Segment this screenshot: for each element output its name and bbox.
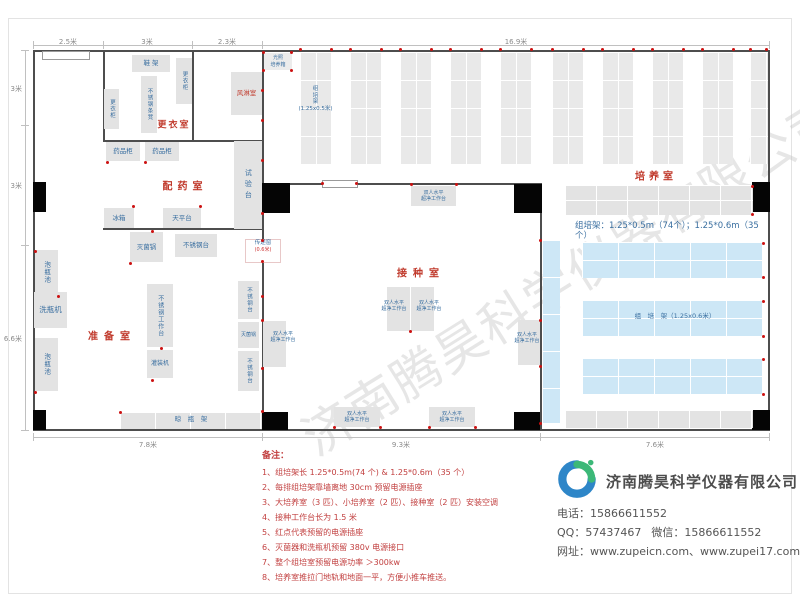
power-outlet-dot (144, 161, 147, 164)
eq-steel-worktable: 不锈钢工作台 (147, 284, 173, 347)
dim-tick (262, 41, 263, 49)
dim-line-left (25, 50, 26, 431)
note-item: 4、接种工作台长为 1.5 米 (262, 510, 557, 525)
power-outlet-dot (430, 48, 433, 51)
power-outlet-dot (601, 48, 604, 51)
culture-rack-column (500, 52, 531, 164)
wall-inoculation-top (262, 183, 542, 185)
power-outlet-dot (732, 48, 735, 51)
dim-tick (21, 125, 29, 126)
wechat-value: 15866611552 (684, 526, 761, 539)
eq-soak-pool: 泡瓶池 (35, 338, 58, 391)
dim-tick (769, 41, 770, 49)
power-outlet-dot (261, 295, 264, 298)
culture-rack-blue-strip (543, 240, 560, 423)
sliding-door (322, 180, 358, 188)
power-outlet-dot (290, 51, 293, 54)
power-outlet-dot (449, 48, 452, 51)
dim-tick (21, 50, 29, 51)
culture-rack-blue-row (582, 242, 763, 278)
power-outlet-dot (355, 182, 358, 185)
dim-top-4: 16.9米 (505, 37, 528, 47)
power-outlet-dot (551, 48, 554, 51)
phone-label: 电话： (557, 507, 590, 520)
room-label-dispensing: 配药室 (163, 178, 208, 193)
eq-steel-table: 不锈钢台 (175, 234, 217, 257)
eq-soak-pool: 泡瓶池 (35, 250, 58, 294)
power-outlet-dot (409, 330, 412, 333)
room-label-culture: 培养室 (635, 168, 677, 183)
wall-airshower-left (192, 50, 194, 142)
rack-spec-label: 组培架：1.25*0.5m（74个）；1.25*0.6m（35个） (575, 221, 770, 241)
floor-plan-canvas: 济南腾昊科学仪器有限公司 2.5米 3米 2.3米 16.9米 3米 3米 6.… (0, 0, 800, 600)
power-outlet-dot (261, 367, 264, 370)
power-outlet-dot (119, 411, 122, 414)
eq-clean-bench: 双人水平 超净工作台 (334, 407, 380, 427)
logo-text: TH (568, 474, 585, 487)
wall-outer-bottom (33, 429, 770, 431)
room-label-inoculation: 接种室 (397, 265, 445, 280)
power-outlet-dot (632, 48, 635, 51)
web-value: www.zupeicn.com、www.zupei17.com (590, 545, 800, 558)
power-outlet-dot (762, 242, 765, 245)
dim-top-1: 2.5米 (59, 37, 77, 47)
power-outlet-dot (321, 182, 324, 185)
power-outlet-dot (749, 48, 752, 51)
power-outlet-dot (261, 89, 264, 92)
power-outlet-dot (151, 230, 154, 233)
power-outlet-dot (261, 212, 264, 215)
pillar (262, 183, 290, 213)
eq-shoe-rack: 鞋 架 (132, 55, 170, 72)
note-item: 8、培养室推拉门地轨和地面一平，方便小推车推送。 (262, 570, 557, 585)
power-outlet-dot (57, 295, 60, 298)
note-item: 2、每排组培架靠墙离地 30cm 预留电源插座 (262, 480, 557, 495)
power-outlet-dot (539, 319, 542, 322)
dim-tick (33, 433, 34, 441)
power-outlet-dot (539, 365, 542, 368)
notes-title: 备注： (262, 448, 557, 461)
dim-tick (103, 41, 104, 49)
eq-clean-bench-label: 双人水平 超净工作台 (262, 331, 304, 343)
dim-left-2: 3米 (2, 181, 22, 191)
power-outlet-dot (530, 48, 533, 51)
eq-locker: 更衣柜 (104, 89, 119, 129)
power-outlet-dot (539, 239, 542, 242)
eq-steel-table: 不锈钢台 (238, 281, 259, 319)
power-outlet-dot (751, 185, 754, 188)
culture-rack-blue-row (582, 358, 763, 395)
power-outlet-dot (290, 69, 293, 72)
eq-air-shower: 风淋室 (231, 72, 262, 115)
notes-block: 备注： 1、组培架长 1.25*0.5m(74 个) & 1.25*0.6m（3… (262, 448, 557, 585)
power-outlet-dot (261, 119, 264, 122)
power-outlet-dot (428, 426, 431, 429)
wechat-label: 微信： (651, 526, 684, 539)
pillar (33, 410, 46, 430)
culture-rack-column (450, 52, 481, 164)
dim-left-1: 3米 (2, 84, 22, 94)
culture-rack-column (750, 52, 768, 164)
hrack-label: 组 培 架（1.25x0.6米） (595, 313, 755, 321)
power-outlet-dot (106, 161, 109, 164)
power-outlet-dot (701, 48, 704, 51)
dim-bottom-1: 7.8米 (139, 440, 157, 450)
dim-tick (21, 245, 29, 246)
power-outlet-dot (261, 410, 264, 413)
pillar (33, 182, 46, 212)
note-item: 5、红点代表预留的电源插座 (262, 525, 557, 540)
power-outlet-dot (262, 69, 265, 72)
pillar (752, 182, 770, 212)
eq-medicine-cabinet: 药品柜 (145, 142, 179, 161)
power-outlet-dot (132, 205, 135, 208)
pillar (514, 412, 540, 430)
dim-bottom-3: 7.6米 (646, 440, 664, 450)
eq-clean-bench: 双人水平 超净工作台 (429, 407, 475, 427)
website-row: 网址：www.zupeicn.com、www.zupei17.com (557, 543, 800, 559)
power-outlet-dot (34, 250, 37, 253)
room-label-prep: 准备室 (88, 328, 136, 343)
qq-label: QQ： (557, 526, 585, 539)
power-outlet-dot (399, 48, 402, 51)
qq-value: 57437467 (585, 526, 641, 539)
power-outlet-dot (762, 300, 765, 303)
culture-rack-column (702, 52, 733, 164)
power-outlet-dot (762, 276, 765, 279)
culture-rack-column (552, 52, 583, 164)
power-outlet-dot (379, 426, 382, 429)
eq-locker: 更衣柜 (176, 58, 192, 104)
dim-top-2: 3米 (141, 37, 152, 47)
culture-rack-column (602, 52, 633, 164)
eq-clean-bench: 双人水平 超净工作台 (411, 186, 456, 206)
power-outlet-dot (410, 183, 413, 186)
eq-sterilizer: 灭菌锅 (130, 232, 163, 262)
power-outlet-dot (762, 393, 765, 396)
pass-window-size: (0.6米) (246, 247, 280, 254)
eq-light-incubator: 光照 培养箱 (264, 53, 292, 70)
power-outlet-dot (499, 48, 502, 51)
note-item: 7、整个组培室预留电源功率 ＞300kw (262, 555, 557, 570)
culture-rack-column (652, 52, 683, 164)
sliding-door (42, 51, 90, 60)
qq-wechat-row: QQ：57437467微信：15866611552 (557, 524, 761, 540)
dim-tick (21, 430, 29, 431)
culture-rack-horizontal-gray (565, 185, 753, 215)
power-outlet-dot (261, 260, 264, 263)
culture-rack-bottom-gray (565, 410, 753, 428)
eq-clean-bench (263, 321, 286, 367)
web-label: 网址： (557, 545, 590, 558)
power-outlet-dot (349, 48, 352, 51)
eq-fridge: 冰箱 (104, 208, 134, 228)
phone-value: 15866611552 (590, 507, 667, 520)
power-outlet-dot (762, 358, 765, 361)
power-outlet-dot (199, 205, 202, 208)
power-outlet-dot (474, 426, 477, 429)
power-outlet-dot (380, 48, 383, 51)
company-logo: TH (555, 458, 599, 502)
power-outlet-dot (765, 48, 768, 51)
note-item: 1、组培架长 1.25*0.5m(74 个) & 1.25*0.6m（35 个） (262, 465, 557, 480)
power-outlet-dot (682, 48, 685, 51)
power-outlet-dot (261, 239, 264, 242)
power-outlet-dot (299, 48, 302, 51)
note-item: 3、大培养室（3 匹）、小培养室（2 匹）、接种室（2 匹）安装空调 (262, 495, 557, 510)
eq-drying-rack-label: 晾 瓶 架 (120, 416, 262, 424)
power-outlet-dot (160, 347, 163, 350)
phone-row: 电话：15866611552 (557, 505, 667, 521)
power-outlet-dot (651, 48, 654, 51)
power-outlet-dot (330, 48, 333, 51)
dim-tick (540, 433, 541, 441)
note-item: 6、灭菌器和洗瓶机预留 380v 电源接口 (262, 540, 557, 555)
power-outlet-dot (333, 426, 336, 429)
eq-filling-machine: 灌装机 (147, 350, 173, 378)
pillar (514, 184, 542, 213)
dim-tick (262, 433, 263, 441)
dim-tick (769, 433, 770, 441)
power-outlet-dot (129, 262, 132, 265)
eq-steel-table: 不锈钢台 (238, 351, 259, 391)
eq-medicine-cabinet: 药品柜 (106, 142, 140, 161)
power-outlet-dot (751, 213, 754, 216)
eq-steel-stool: 不锈钢条凳 (141, 76, 157, 133)
power-outlet-dot (261, 159, 264, 162)
dim-top-3: 2.3米 (218, 37, 236, 47)
company-name: 济南腾昊科学仪器有限公司 (606, 471, 798, 492)
power-outlet-dot (762, 335, 765, 338)
dim-left-3: 6.6米 (0, 334, 22, 344)
eq-bottle-washer: 洗瓶机 (34, 292, 67, 328)
pillar (262, 412, 288, 430)
eq-clean-bench-label: 双人水平 超净工作台 (408, 300, 450, 312)
power-outlet-dot (34, 391, 37, 394)
dim-tick (192, 41, 193, 49)
power-outlet-dot (480, 48, 483, 51)
power-outlet-dot (582, 48, 585, 51)
dim-tick (33, 41, 34, 49)
dim-line-bottom (33, 437, 770, 438)
power-outlet-dot (151, 379, 154, 382)
pillar (752, 410, 770, 430)
power-outlet-dot (455, 183, 458, 186)
eq-test-bench: 试验台 (234, 141, 262, 229)
eq-clean-bench-label: 双人水平 超净工作台 (506, 332, 548, 344)
culture-rack-column (350, 52, 381, 164)
wall-inoculation-right (540, 183, 542, 431)
power-outlet-dot (262, 51, 265, 54)
vrack-label: 组 培 架 (1.25x0.5米) (297, 86, 334, 112)
power-outlet-dot (261, 319, 264, 322)
power-outlet-dot (539, 422, 542, 425)
culture-rack-column (400, 52, 431, 164)
eq-sterilizer: 灭菌锅 (238, 322, 259, 348)
eq-balance-table: 天平台 (163, 208, 201, 228)
room-label-changing: 更衣室 (157, 118, 190, 131)
